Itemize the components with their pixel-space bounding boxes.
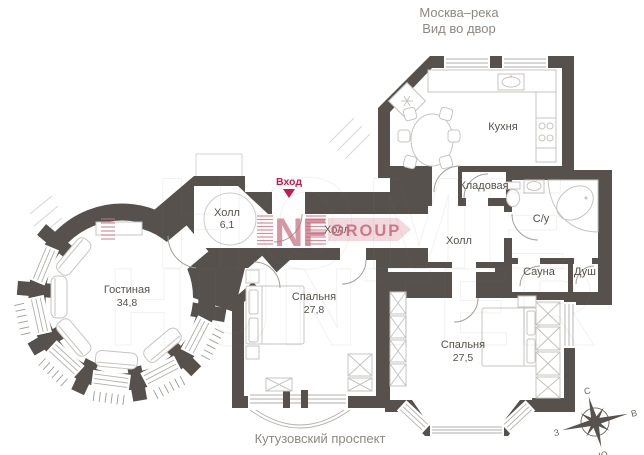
radiator-box	[348, 378, 372, 391]
svg-text:HUNTER: HUNTER	[108, 246, 602, 369]
compass-south: Ю	[598, 449, 609, 455]
nf-logo-mark: NF	[274, 211, 325, 255]
kitchen-window-1	[444, 54, 490, 70]
kitchen-sink	[498, 74, 524, 90]
console-table	[96, 222, 142, 235]
compass-east: В	[630, 408, 638, 419]
view-note-line1: Москва–река	[419, 5, 499, 20]
radiator-box	[266, 378, 292, 391]
compass-north: С	[583, 385, 592, 396]
compass-west: З	[553, 427, 561, 438]
floor-plan-page: С Ю В З Гостиная 34,8 Холл 6,1 Холл Холл…	[0, 0, 644, 455]
kitchen-window-2	[502, 54, 548, 70]
view-note-line2: Вид во двор	[422, 21, 496, 36]
radiator-hatch	[14, 303, 30, 334]
nf-logo-group-text: GROUP	[331, 222, 402, 240]
background-watermark: HOME HUNTER	[108, 150, 602, 369]
bedroom2-bay-window-center	[430, 424, 504, 437]
floor-plan-drawing: С Ю В З Гостиная 34,8 Холл 6,1 Холл Холл…	[0, 0, 644, 455]
radiator-hatch	[93, 391, 124, 405]
balcony-arc	[250, 410, 350, 428]
street-label: Кутузовский проспект	[255, 431, 386, 446]
stove	[536, 118, 556, 148]
label-kitchen: Кухня	[488, 121, 517, 133]
bedroom1-bay-window	[248, 390, 348, 408]
